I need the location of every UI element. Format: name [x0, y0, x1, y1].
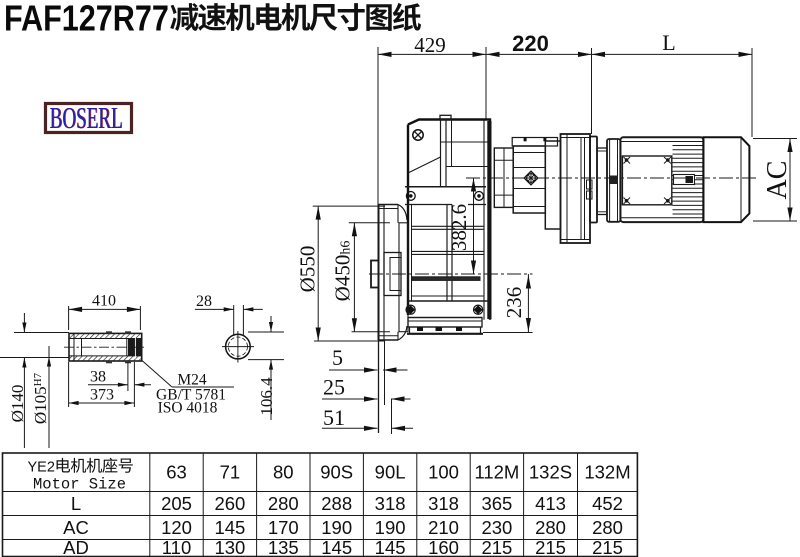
svg-text:280: 280 — [592, 517, 623, 538]
svg-text:280: 280 — [268, 493, 299, 514]
svg-text:100: 100 — [428, 462, 459, 483]
svg-text:38: 38 — [90, 369, 106, 386]
svg-text:260: 260 — [214, 493, 245, 514]
svg-text:280: 280 — [535, 517, 566, 538]
svg-text:132M: 132M — [584, 462, 630, 483]
svg-text:452: 452 — [592, 493, 623, 514]
svg-text:106.4: 106.4 — [257, 377, 276, 416]
svg-text:L: L — [662, 30, 675, 55]
svg-text:429: 429 — [414, 33, 446, 57]
svg-text:FAF127R77: FAF127R77 — [4, 0, 169, 39]
svg-text:130: 130 — [214, 537, 245, 557]
svg-text:160: 160 — [428, 537, 459, 557]
svg-text:215: 215 — [481, 537, 512, 557]
svg-text:110: 110 — [162, 537, 192, 557]
svg-text:ISO 4018: ISO 4018 — [158, 400, 218, 417]
svg-text:205: 205 — [161, 493, 192, 514]
svg-text:145: 145 — [214, 517, 245, 538]
svg-text:318: 318 — [375, 493, 406, 514]
svg-text:90L: 90L — [375, 462, 406, 483]
svg-text:YE2: YE2 — [28, 460, 55, 476]
svg-text:190: 190 — [375, 517, 406, 538]
svg-text:Motor Size: Motor Size — [33, 476, 126, 494]
svg-text:AC: AC — [63, 517, 89, 538]
svg-text:5: 5 — [332, 345, 343, 370]
svg-text:90S: 90S — [320, 462, 353, 483]
svg-text:413: 413 — [535, 493, 566, 514]
svg-text:318: 318 — [428, 493, 459, 514]
svg-text:120: 120 — [161, 517, 192, 538]
svg-text:145: 145 — [321, 537, 352, 557]
svg-text:220: 220 — [512, 31, 549, 56]
svg-text:210: 210 — [428, 517, 459, 538]
svg-text:373: 373 — [90, 387, 114, 404]
svg-text:28: 28 — [196, 293, 212, 310]
svg-text:145: 145 — [375, 537, 406, 557]
svg-text:AC: AC — [762, 161, 793, 200]
svg-text:51: 51 — [323, 405, 345, 430]
svg-text:Ø140: Ø140 — [8, 385, 27, 423]
svg-text:215: 215 — [535, 537, 566, 557]
svg-text:288: 288 — [321, 493, 352, 514]
svg-text:132S: 132S — [529, 462, 572, 483]
svg-text:236: 236 — [502, 287, 526, 319]
svg-text:230: 230 — [481, 517, 512, 538]
svg-text:135: 135 — [268, 537, 299, 557]
svg-text:Ø550: Ø550 — [296, 246, 320, 293]
svg-text:25: 25 — [323, 375, 345, 400]
svg-text:190: 190 — [321, 517, 352, 538]
svg-text:80: 80 — [273, 462, 294, 483]
svg-text:71: 71 — [220, 462, 241, 483]
svg-text:63: 63 — [166, 462, 187, 483]
svg-text:170: 170 — [268, 517, 299, 538]
svg-text:AD: AD — [63, 537, 89, 557]
svg-text:410: 410 — [92, 293, 116, 310]
svg-text:112M: 112M — [474, 462, 519, 483]
svg-text:L: L — [71, 493, 81, 514]
svg-text:365: 365 — [481, 493, 512, 514]
svg-text:382.6: 382.6 — [447, 204, 471, 251]
svg-text:BOSERL: BOSERL — [50, 102, 123, 136]
svg-text:215: 215 — [592, 537, 623, 557]
